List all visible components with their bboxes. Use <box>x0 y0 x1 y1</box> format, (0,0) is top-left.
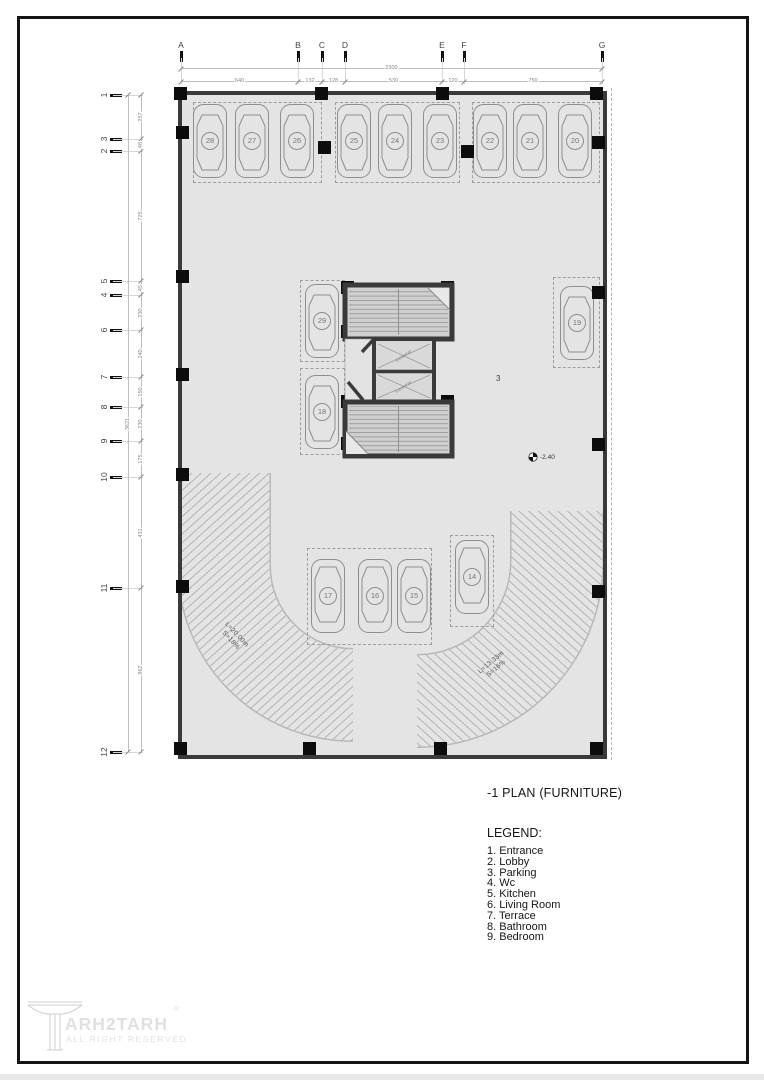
grid-number: 1 <box>99 93 109 98</box>
column <box>315 87 328 100</box>
column <box>590 742 603 755</box>
car: 24 <box>375 102 415 180</box>
car: 18 <box>302 373 342 451</box>
car-number: 19 <box>557 318 597 327</box>
car-number: 23 <box>420 136 460 145</box>
car: 22 <box>470 102 510 180</box>
level-marker: -2.40 <box>528 452 555 462</box>
column <box>174 742 187 755</box>
car: 14 <box>452 538 492 616</box>
dim-value: 45 <box>138 284 144 292</box>
grid-number: 2 <box>99 149 109 154</box>
column <box>176 580 189 593</box>
zone-label: 3 <box>496 374 500 383</box>
car-number: 28 <box>190 136 230 145</box>
dim-value: 257 <box>138 111 144 122</box>
column <box>590 87 603 100</box>
car: 27 <box>232 102 272 180</box>
car: 20 <box>555 102 595 180</box>
grid-number: 8 <box>99 405 109 410</box>
dim-value: 725 <box>138 210 144 221</box>
legend-title: LEGEND: <box>487 826 622 840</box>
car-number: 26 <box>277 136 317 145</box>
sheet: L=20.00m S=18% L=13.33m S=16% 2827262524… <box>0 0 764 1080</box>
car-number: 27 <box>232 136 272 145</box>
level-marker-value: -2.40 <box>540 454 555 461</box>
column <box>592 286 605 299</box>
dim-value: 2300 <box>384 65 398 71</box>
plan-title: -1 PLAN (FURNITURE) <box>487 786 622 800</box>
grid-number: 10 <box>99 472 109 481</box>
logo: ARH2TARH ® ALL RIGHT RESERVED <box>27 1000 217 1056</box>
car-number: 20 <box>555 136 595 145</box>
legend-item: 2. Lobby <box>487 857 622 868</box>
dim-value: 128 <box>328 78 339 84</box>
car-number: 24 <box>375 136 415 145</box>
grid-letter: F <box>461 40 466 50</box>
car: 26 <box>277 102 317 180</box>
grid-number: 12 <box>99 747 109 756</box>
car: 25 <box>334 102 374 180</box>
legend-item: 9. Bedroom <box>487 932 622 943</box>
car: 16 <box>355 557 395 635</box>
column <box>176 368 189 381</box>
car-number: 17 <box>308 591 348 600</box>
dim-value: 240 <box>138 348 144 359</box>
grid-number: 9 <box>99 439 109 444</box>
car: 17 <box>308 557 348 635</box>
grid-letter: A <box>178 40 184 50</box>
page-edge <box>0 1074 764 1080</box>
elevator-block: ELEVATOR ELEVATOR <box>345 339 434 404</box>
grid-letter: E <box>439 40 445 50</box>
dim-value: 132 <box>304 78 315 84</box>
legend-item: 7. Terrace <box>487 911 622 922</box>
dim-value: 175 <box>138 453 144 464</box>
grid-number: 3 <box>99 137 109 142</box>
logo-name: ARH2TARH <box>65 1014 168 1035</box>
grid-number: 5 <box>99 279 109 284</box>
dim-value: 431 <box>138 527 144 538</box>
column <box>436 87 449 100</box>
dim-value: 862 <box>138 664 144 675</box>
car-number: 16 <box>355 591 395 600</box>
column <box>176 468 189 481</box>
grid-number: 11 <box>99 584 109 593</box>
car-number: 25 <box>334 136 374 145</box>
grid-number: 4 <box>99 293 109 298</box>
column <box>176 270 189 283</box>
logo-registered-icon: ® <box>174 1006 179 1013</box>
stair-bottom <box>345 402 452 456</box>
column <box>303 742 316 755</box>
dim-value: 230 <box>138 307 144 318</box>
car: 23 <box>420 102 460 180</box>
dim-value: 120 <box>447 78 458 84</box>
car-number: 22 <box>470 136 510 145</box>
dim-value: 3621 <box>125 416 131 430</box>
level-marker-icon <box>528 452 538 462</box>
car-number: 18 <box>302 407 342 416</box>
car-number: 15 <box>394 591 434 600</box>
property-dashed-line <box>611 88 613 760</box>
car-number: 14 <box>452 572 492 581</box>
car: 21 <box>510 102 550 180</box>
grid-letter: C <box>319 40 325 50</box>
car-number: 29 <box>302 316 342 325</box>
dim-value: 530 <box>388 78 399 84</box>
grid-letter: D <box>342 40 348 50</box>
column <box>461 145 474 158</box>
title-block: -1 PLAN (FURNITURE) LEGEND: 1. Entrance2… <box>487 786 622 943</box>
dim-value: 750 <box>527 78 538 84</box>
dim-value: 150 <box>138 386 144 397</box>
grid-letter: G <box>599 40 606 50</box>
stair-top <box>345 285 452 339</box>
grid-number: 7 <box>99 375 109 380</box>
column <box>592 438 605 451</box>
column <box>592 136 605 149</box>
column <box>174 87 187 100</box>
car-number: 21 <box>510 136 550 145</box>
grid-number: 6 <box>99 328 109 333</box>
column <box>318 141 331 154</box>
grid-letter: B <box>295 40 301 50</box>
car: 29 <box>302 282 342 360</box>
core: ELEVATOR ELEVATOR <box>338 278 460 462</box>
dim-value: 640 <box>234 78 245 84</box>
logo-tagline: ALL RIGHT RESERVED <box>66 1034 187 1044</box>
column <box>176 126 189 139</box>
car: 19 <box>557 284 597 362</box>
column <box>434 742 447 755</box>
car: 28 <box>190 102 230 180</box>
dim-value: 48 <box>138 141 144 149</box>
legend-list: 1. Entrance2. Lobby3. Parking4. Wc5. Kit… <box>487 846 622 943</box>
column <box>592 585 605 598</box>
car: 15 <box>394 557 434 635</box>
dim-value: 230 <box>138 418 144 429</box>
